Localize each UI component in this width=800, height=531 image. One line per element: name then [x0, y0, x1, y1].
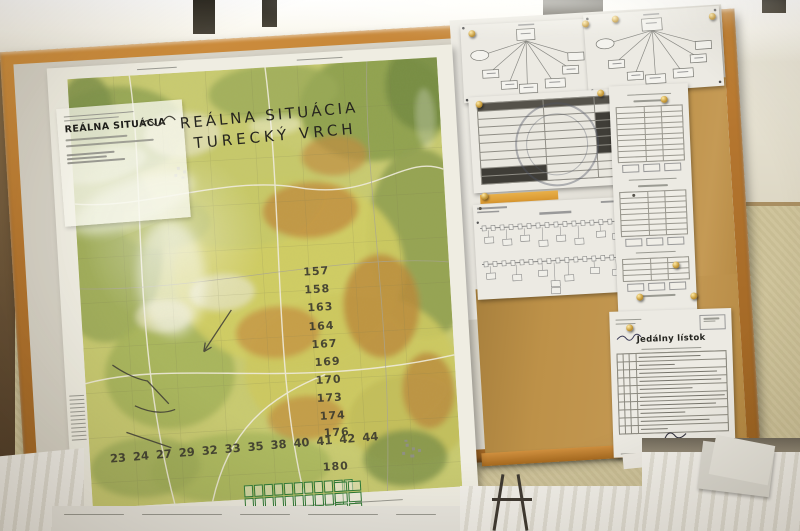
signature-squiggle	[137, 112, 178, 131]
small-table-2	[619, 189, 688, 237]
map-info-card: REÁLNA SITUÁCIA	[56, 99, 191, 226]
tablecloth-center	[460, 486, 646, 531]
map-margin-text	[137, 64, 177, 73]
menu-header-box	[699, 314, 725, 330]
window-mullion	[262, 0, 277, 27]
paper-small-tables	[609, 83, 698, 316]
table-papers	[52, 506, 476, 531]
bulletin-board: REÁLNA SITUÁCIA REÁLNA SITUÁCIA TURECKÝ …	[0, 9, 760, 490]
window-mullion	[193, 0, 215, 34]
radial-diagram	[583, 6, 724, 95]
topographic-map: REÁLNA SITUÁCIA REÁLNA SITUÁCIA TURECKÝ …	[47, 44, 480, 531]
map-margin-text	[296, 54, 342, 63]
easel-crossbar	[492, 498, 532, 501]
paper-radial-diagram-2	[583, 6, 724, 95]
map-margin-legend	[69, 392, 87, 443]
small-table-1	[616, 104, 685, 163]
window-mullion	[762, 0, 786, 13]
small-table-3	[622, 256, 690, 282]
menu-table	[617, 350, 729, 434]
photo-bulletin-board-scene: REÁLNA SITUÁCIA REÁLNA SITUÁCIA TURECKÝ …	[0, 0, 800, 531]
